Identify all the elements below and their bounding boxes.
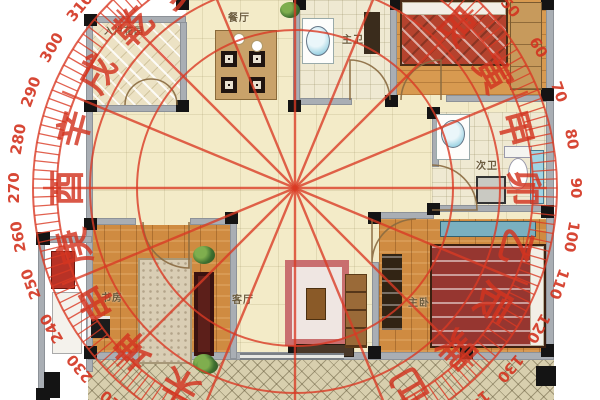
bush	[196, 358, 218, 374]
plant-pot	[193, 246, 215, 264]
column	[225, 212, 238, 224]
dining-chair	[249, 77, 265, 93]
column	[427, 203, 440, 215]
label-master-bedroom: 主卧	[408, 294, 430, 309]
bath2-toilet-tank	[504, 146, 532, 158]
column	[176, 100, 189, 112]
living-coffee-table	[306, 288, 326, 320]
exterior-notch-top	[88, 0, 186, 16]
master-wardrobe	[382, 254, 402, 330]
wall-segment	[300, 98, 352, 105]
label-living: 客厅	[232, 291, 254, 306]
bedroom2-wardrobe	[510, 2, 542, 90]
bath2-sink-bowl	[441, 120, 465, 148]
fengshui-floorplan: 入户花园 餐厅 主卫 次卫 客厅 书房 主卧 亥乾戌辛酉庚申坤未艮寅甲卯乙辰巽巳…	[0, 0, 600, 400]
annex-desk	[52, 292, 82, 354]
column	[368, 346, 381, 359]
wall-segment	[372, 212, 434, 219]
column	[536, 366, 556, 386]
wall-segment	[88, 105, 186, 112]
wall-segment	[88, 16, 186, 23]
media-wall	[194, 272, 214, 356]
column	[84, 218, 97, 230]
plant-pot	[280, 2, 300, 18]
dining-chair	[221, 77, 237, 93]
study-sofa	[138, 258, 192, 364]
column	[385, 95, 398, 107]
dining-plate	[233, 33, 245, 45]
bath1-cabinet	[364, 12, 380, 54]
column	[541, 0, 554, 10]
wall-segment	[372, 262, 379, 352]
master-bed-pillows	[530, 246, 544, 346]
label-dining: 餐厅	[228, 9, 250, 24]
wall-segment	[432, 205, 546, 212]
column	[368, 212, 381, 224]
bedroom2-pillows	[402, 2, 506, 15]
column	[541, 205, 554, 218]
dining-plate	[251, 40, 263, 52]
bath1-sink-bowl	[306, 26, 330, 56]
compass-degree-label: 100	[560, 220, 583, 254]
wall-segment	[230, 218, 237, 359]
column	[84, 14, 97, 26]
dining-chair	[249, 51, 265, 67]
label-master-bath: 主卫	[342, 31, 364, 46]
study-side-table	[88, 316, 110, 338]
master-bed	[430, 244, 546, 348]
compass-degree-label: 80	[561, 127, 582, 151]
label-study: 书房	[101, 289, 123, 304]
column	[84, 346, 97, 359]
wall-segment	[180, 22, 187, 112]
bath2-toilet-bowl	[508, 158, 528, 190]
dining-chair	[221, 51, 237, 67]
label-second-bath: 次卫	[476, 157, 498, 172]
master-dresser	[440, 221, 536, 237]
wall-segment	[390, 0, 397, 103]
balcony-sliding-door	[240, 353, 344, 360]
living-shelf	[345, 274, 367, 348]
terrace-paving	[88, 360, 554, 400]
column	[44, 372, 60, 398]
bath2-shower	[476, 176, 506, 204]
bath2-tub	[530, 150, 544, 204]
column	[288, 100, 301, 112]
wall-segment	[546, 0, 554, 358]
label-entry-garden: 入户花园	[104, 24, 144, 37]
column	[84, 100, 97, 112]
column	[176, 0, 189, 10]
column	[36, 232, 50, 245]
wall-segment	[446, 95, 546, 102]
annex-red-cabinet	[51, 251, 75, 289]
column	[541, 88, 554, 101]
compass-degree-label: 90	[567, 178, 585, 199]
